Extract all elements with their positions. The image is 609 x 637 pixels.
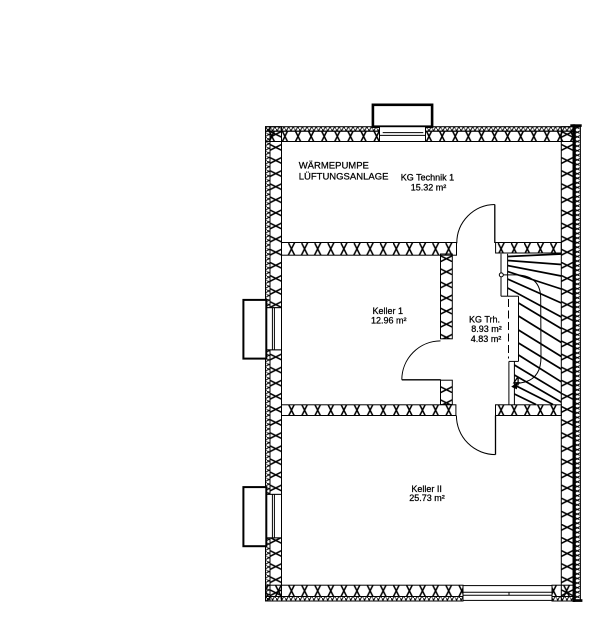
svg-text:8.93 m²: 8.93 m² — [471, 324, 502, 334]
svg-text:KG Technik 1: KG Technik 1 — [401, 173, 454, 183]
svg-text:4.83 m²: 4.83 m² — [471, 334, 502, 344]
svg-text:12.96 m²: 12.96 m² — [371, 316, 407, 326]
svg-text:WÄRMEPUMPE: WÄRMEPUMPE — [299, 161, 369, 172]
svg-text:25.73 m²: 25.73 m² — [409, 493, 445, 503]
svg-text:15.32 m²: 15.32 m² — [411, 182, 447, 192]
svg-text:LÜFTUNGSANLAGE: LÜFTUNGSANLAGE — [299, 172, 389, 183]
